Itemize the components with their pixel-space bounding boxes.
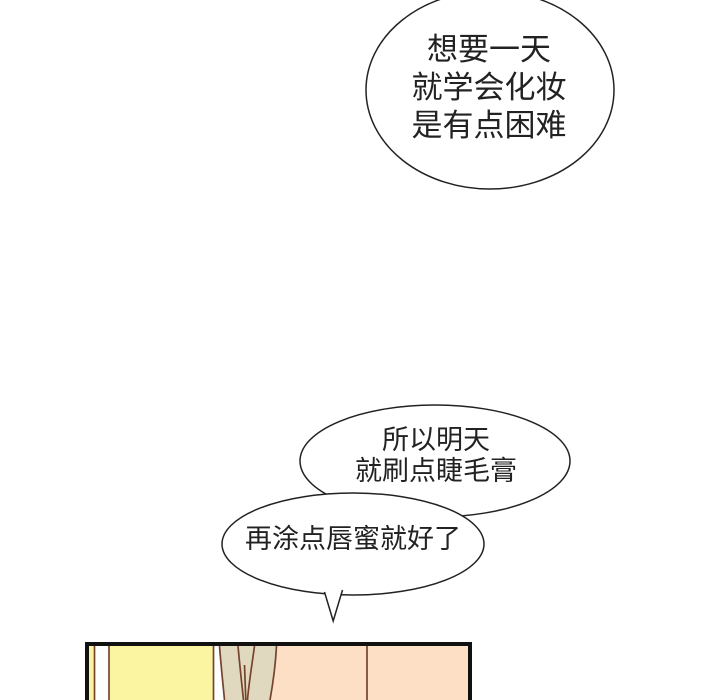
yellow-wall — [110, 646, 213, 700]
bubble-text-line: 就学会化妆 — [412, 69, 567, 107]
peach-wall — [270, 646, 468, 700]
bubble-text-line: 想要一天 — [412, 31, 567, 69]
speech-bubble-tail — [325, 590, 343, 621]
bottom-panel — [85, 642, 472, 700]
bubble-low-text: 再涂点唇蜜就好了 — [245, 524, 461, 555]
bubble-text-line: 就刷点睫毛膏 — [355, 456, 517, 487]
bubble-text-line: 再涂点唇蜜就好了 — [245, 524, 461, 555]
wall-strip-left — [89, 646, 94, 700]
bubble-text-line: 所以明天 — [355, 425, 517, 456]
bubble-top-text: 想要一天 就学会化妆 是有点困难 — [412, 31, 567, 145]
comic-artwork — [0, 0, 720, 700]
bubble-text-line: 是有点困难 — [412, 107, 567, 145]
bubble-mid-text: 所以明天 就刷点睫毛膏 — [355, 425, 517, 487]
comic-page: 想要一天 就学会化妆 是有点困难 所以明天 就刷点睫毛膏 再涂点唇蜜就好了 — [0, 0, 720, 700]
